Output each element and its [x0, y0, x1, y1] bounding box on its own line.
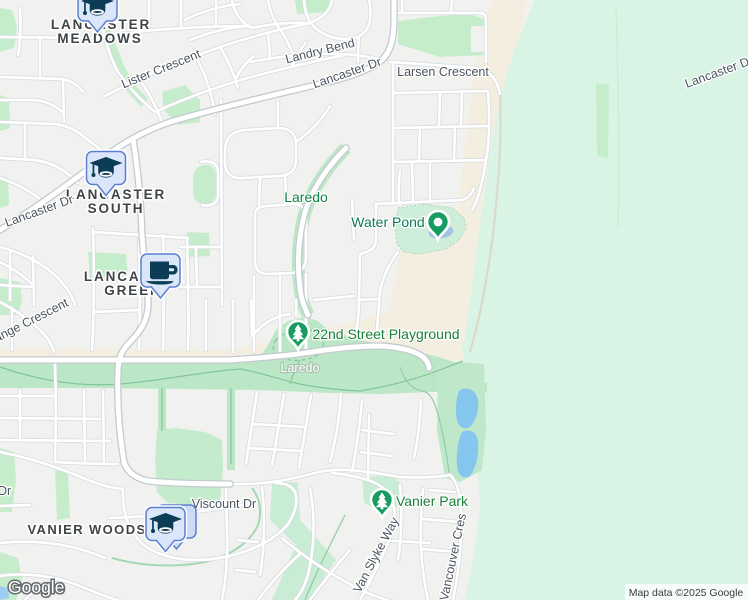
svg-text:Water Pond: Water Pond [351, 214, 424, 230]
svg-text:Dr: Dr [0, 484, 11, 498]
svg-text:LANCASTER: LANCASTER [66, 187, 166, 202]
svg-text:Map data ©2025 Google: Map data ©2025 Google [629, 587, 744, 599]
svg-text:Viscount Dr: Viscount Dr [192, 497, 256, 511]
svg-text:SOUTH: SOUTH [88, 201, 145, 216]
svg-text:Google: Google [8, 577, 64, 597]
svg-text:Larsen Crescent: Larsen Crescent [397, 65, 489, 79]
svg-text:MEADOWS: MEADOWS [57, 31, 142, 46]
svg-text:VANIER WOODS: VANIER WOODS [27, 522, 146, 537]
svg-text:Laredo: Laredo [284, 189, 328, 205]
svg-text:22nd Street Playground: 22nd Street Playground [312, 326, 459, 342]
svg-text:Laredo: Laredo [281, 361, 320, 375]
svg-text:Vanier Park: Vanier Park [396, 493, 469, 509]
